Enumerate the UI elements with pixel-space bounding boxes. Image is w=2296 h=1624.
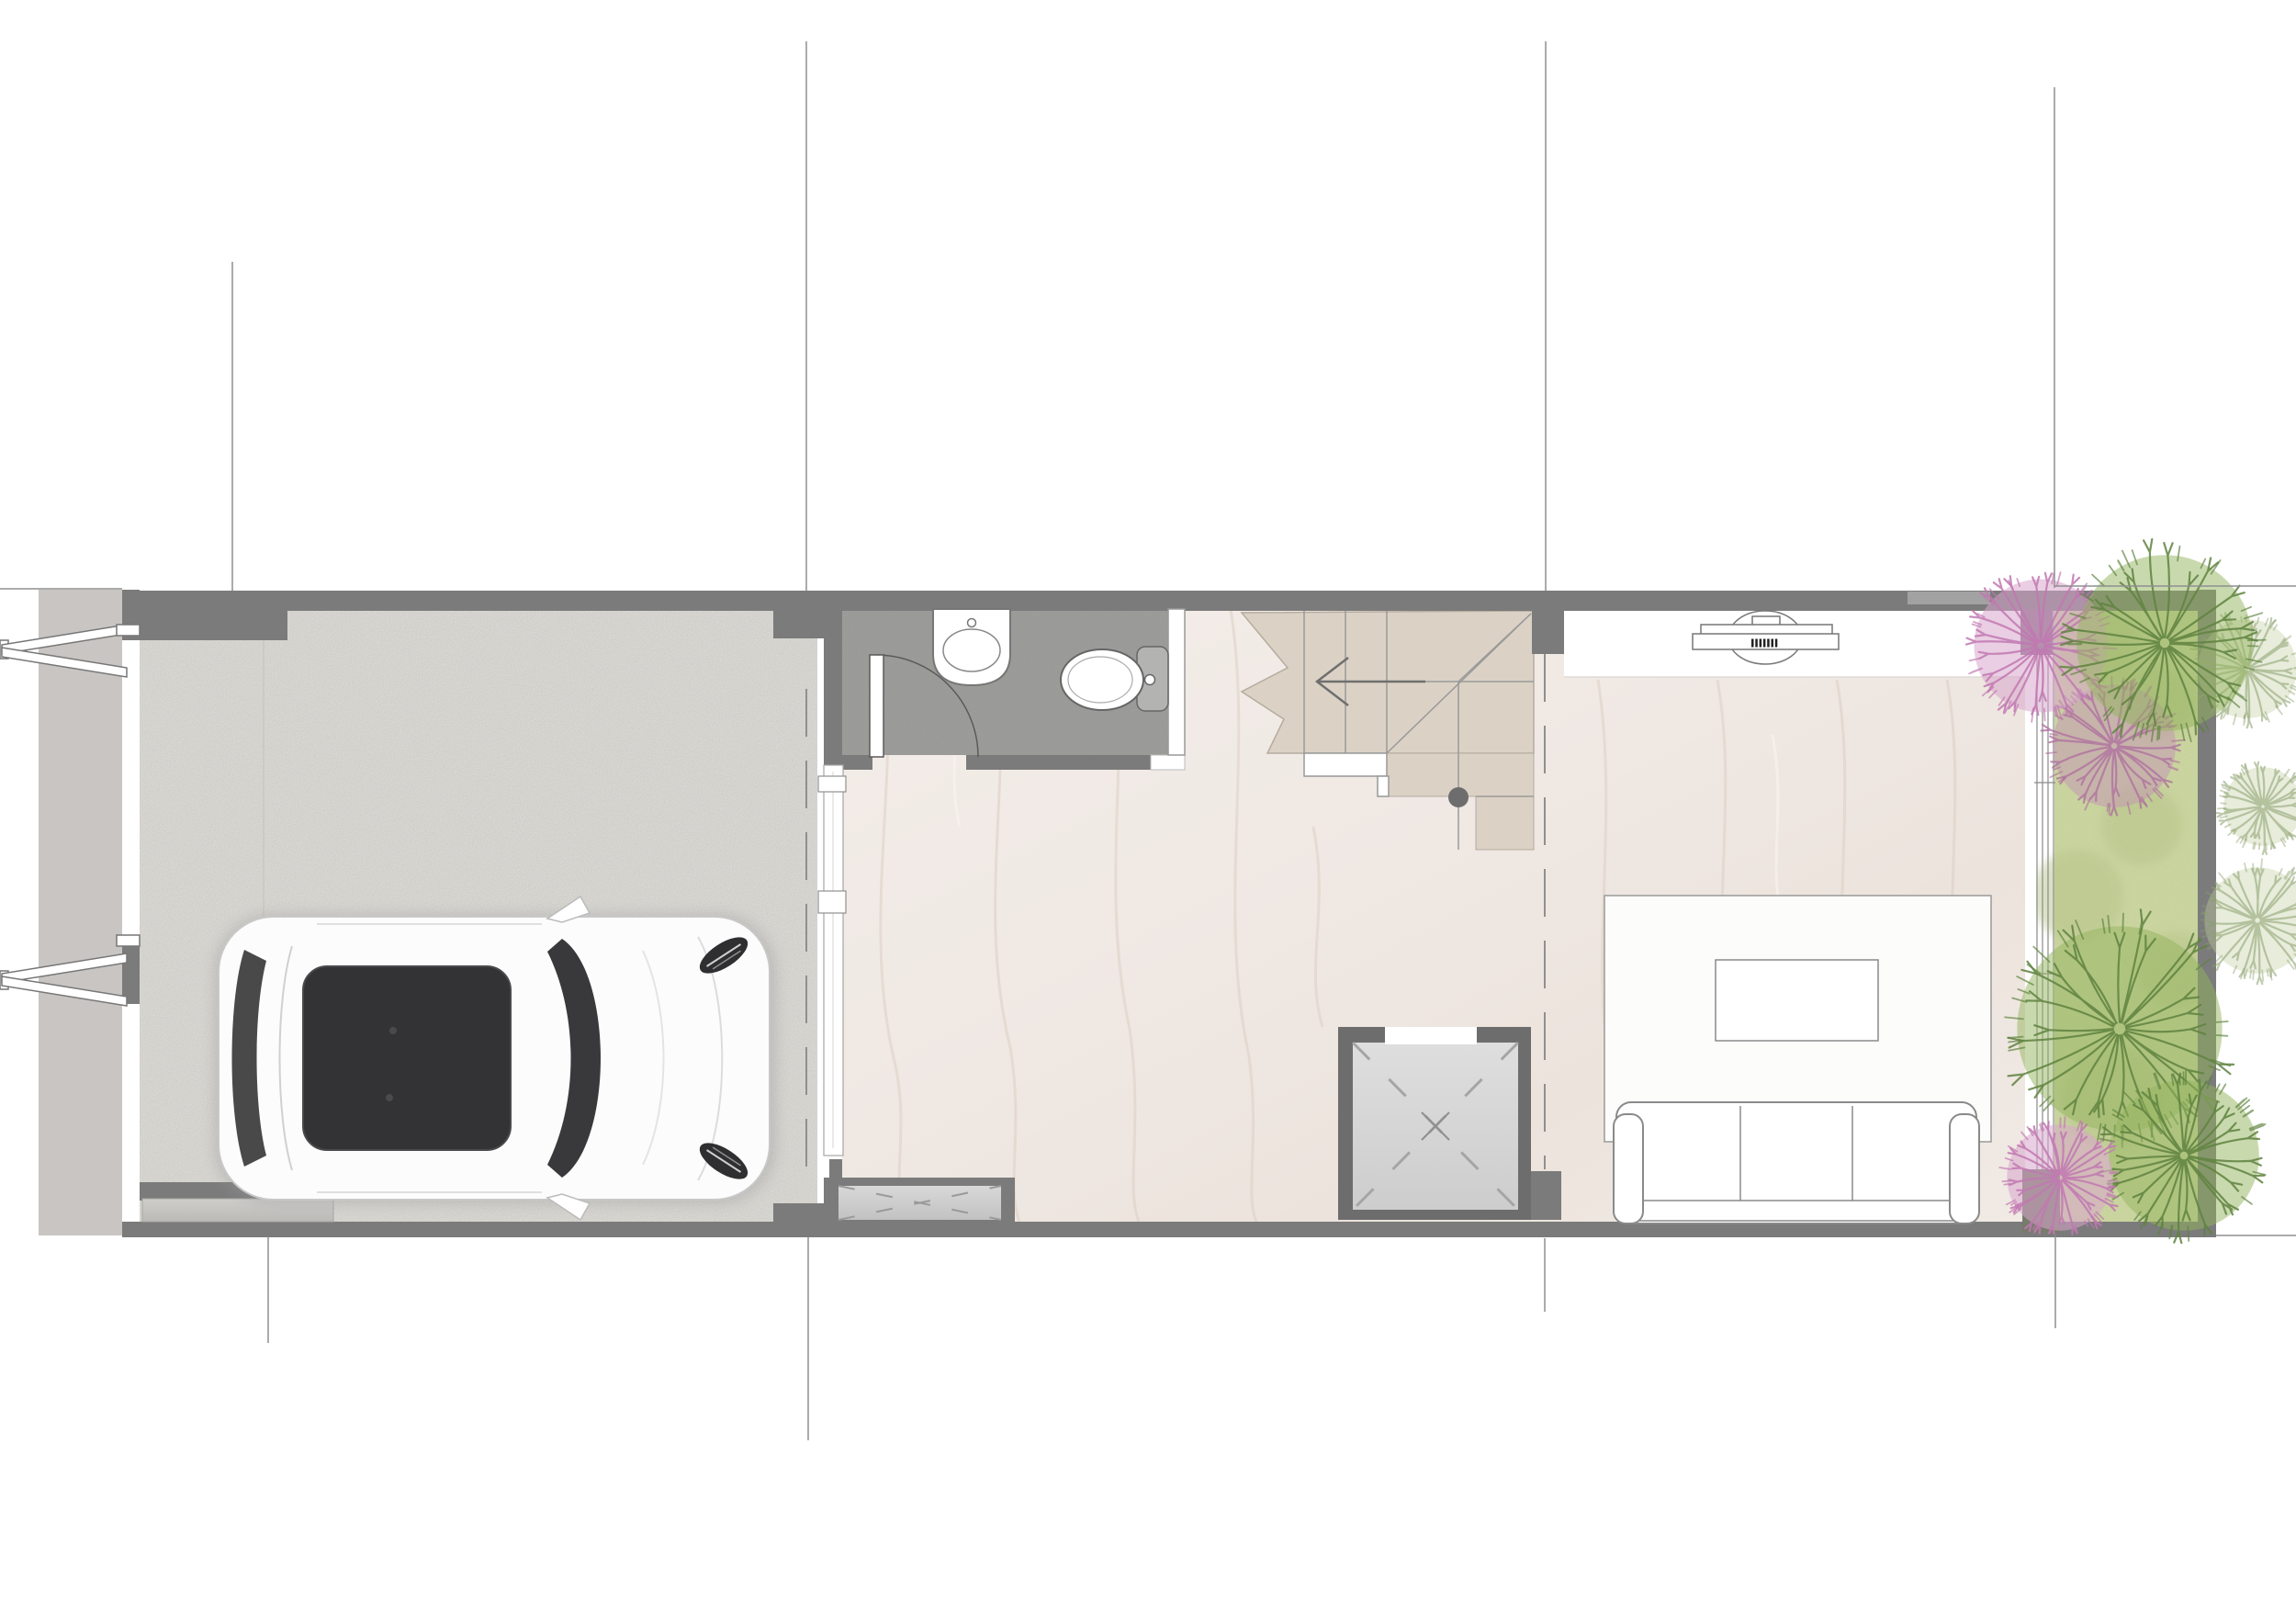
- boundary-fence: [39, 590, 122, 1235]
- tree-canopy: [2007, 1124, 2112, 1230]
- toilet-flush-button: [1145, 675, 1155, 685]
- washbasin: [933, 609, 1010, 685]
- stair-start-step-return: [1378, 776, 1389, 796]
- bathroom-bottom-wall-a: [842, 755, 872, 770]
- top-wall: [122, 591, 2216, 611]
- toilet-bowl: [1061, 649, 1143, 710]
- stair-newel-post: [1448, 787, 1469, 807]
- tv-screen: [1693, 634, 1839, 649]
- stair-lower-steps: [1476, 796, 1534, 850]
- stair-start-step: [1304, 753, 1387, 776]
- sofa-backrest: [1628, 1201, 1964, 1221]
- garage-foyer-sliding-door: [818, 765, 846, 1156]
- foyer-bottom-pier: [773, 1203, 831, 1237]
- bathroom-threshold: [1151, 755, 1185, 770]
- elevator-side-pier: [1531, 1171, 1561, 1220]
- floor-plan-canvas: [0, 0, 2296, 1624]
- elevator: [1338, 1027, 1531, 1220]
- sliding-door-panel: [818, 891, 846, 913]
- bathroom-right-partition: [1168, 609, 1185, 755]
- sofa: [1614, 1102, 1979, 1224]
- coffee-table: [1716, 960, 1878, 1041]
- garden-tree: [2217, 762, 2296, 854]
- wall-pier-living: [1532, 591, 1564, 654]
- car: [215, 897, 775, 1220]
- sliding-door-panel: [818, 776, 846, 792]
- tree-canopy: [2204, 867, 2296, 973]
- wall-pier-garage: [122, 591, 287, 640]
- bathroom-left-wall: [824, 597, 842, 770]
- gate-jamb: [117, 625, 140, 636]
- car-sunroof-detail: [386, 1094, 393, 1101]
- sofa-armrest-left: [1614, 1114, 1643, 1224]
- top-wall-window-segment: [1908, 592, 1990, 604]
- toilet: [1061, 647, 1168, 711]
- left-wall-upper: [122, 590, 140, 625]
- car-sunroof: [303, 966, 511, 1150]
- floor-plan-stage: [0, 0, 2296, 1624]
- elevator-door-opening: [1385, 1027, 1477, 1044]
- sofa-armrest-right: [1950, 1114, 1979, 1224]
- washbasin-faucet-hole: [968, 619, 976, 627]
- gate-jamb: [117, 935, 140, 946]
- tree-canopy: [2077, 555, 2253, 731]
- door-leaf: [870, 655, 884, 757]
- bathroom-bottom-wall-b: [966, 755, 1151, 770]
- car-sunroof-detail: [389, 1027, 397, 1034]
